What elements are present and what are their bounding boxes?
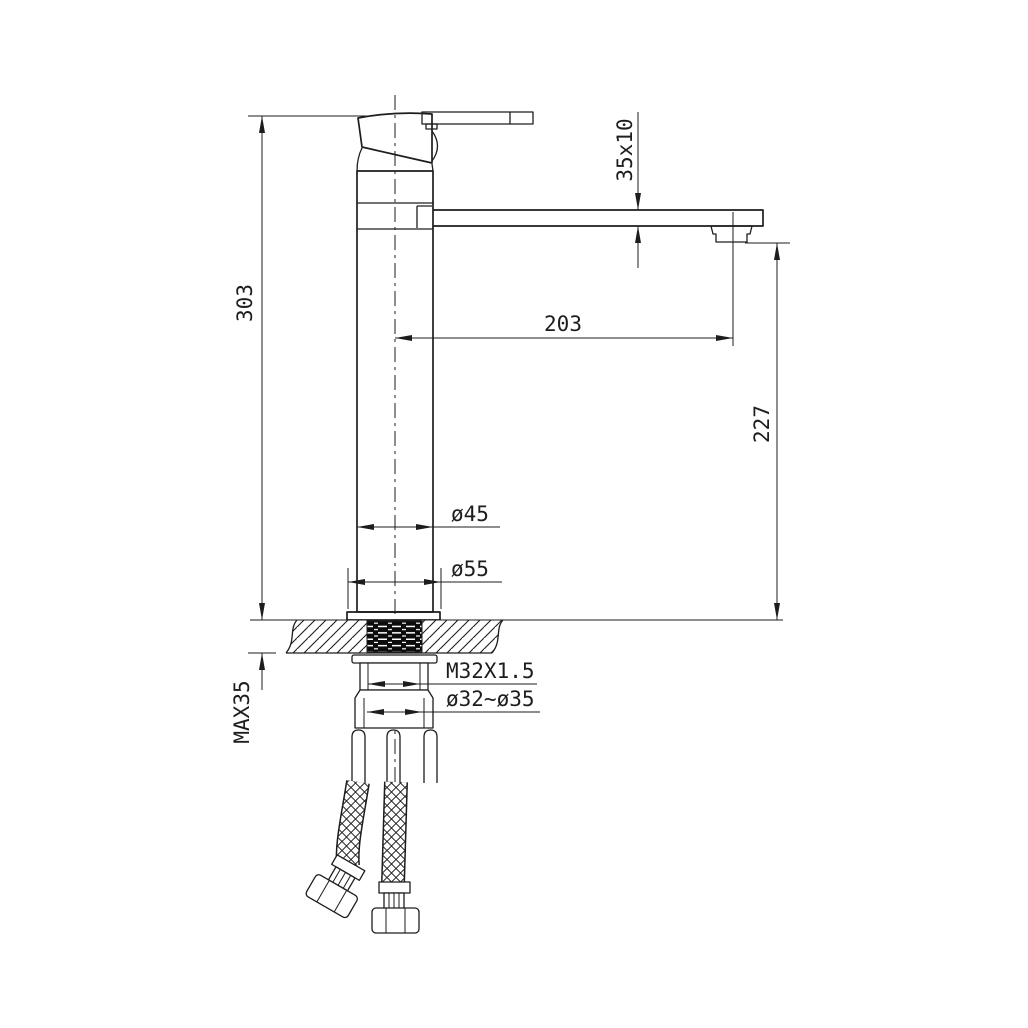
dimension-label-mounting-hole: ø32~ø35	[446, 687, 535, 711]
dimension-label-outlet-height: 227	[750, 405, 774, 443]
dimension-label-max-deck-thickness: MAX35	[230, 680, 254, 743]
dimension-label-spout-reach: 203	[544, 312, 582, 336]
shank-washer	[352, 655, 437, 663]
faucet-technical-drawing: 303 MAX35 35x10 203	[0, 0, 1028, 1028]
threaded-shank	[367, 621, 422, 652]
hose-neck-straight	[384, 893, 404, 909]
dimension-label-base-diameter: ø55	[451, 557, 489, 581]
hose-ferrule-straight	[379, 882, 410, 893]
counter-hatch-right	[422, 620, 503, 653]
hose-nut-straight	[372, 908, 419, 933]
mounting-nut	[355, 690, 433, 728]
dimension-label-overall-height: 303	[233, 284, 257, 322]
braided-hose-straight	[393, 782, 396, 884]
dimension-label-body-diameter: ø45	[451, 502, 489, 526]
dimension-label-shank-thread: M32X1.5	[446, 659, 535, 683]
lock-nut	[360, 663, 428, 690]
braided-hose-angled	[348, 782, 358, 866]
counter-hatch-left	[286, 620, 367, 653]
drawing-background	[0, 0, 1028, 1028]
dimension-label-spout-profile: 35x10	[613, 118, 637, 181]
